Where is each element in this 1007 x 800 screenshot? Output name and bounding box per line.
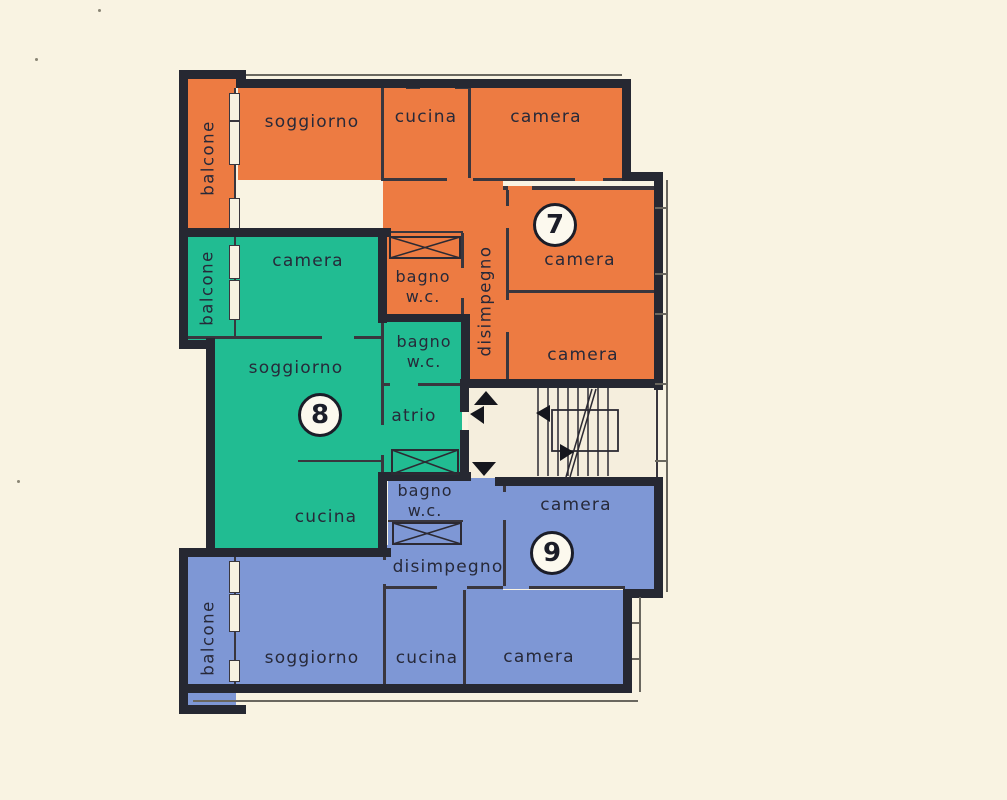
wall-thick [206, 548, 391, 557]
label-camera2-apt7: camera [547, 345, 618, 365]
label-cucina-apt9: cucina [396, 648, 459, 668]
wall-thick [179, 705, 246, 714]
label-bagno-apt9: bagno w.c. [397, 481, 452, 521]
wall [381, 88, 384, 180]
label-balcone-apt8: balcone [198, 250, 217, 325]
wall [383, 231, 463, 233]
wall-thick [378, 314, 470, 322]
window [229, 280, 240, 320]
wall [463, 590, 466, 684]
wall-thick [378, 228, 387, 323]
outline [193, 700, 638, 702]
tick [655, 273, 666, 275]
wall-thick [206, 338, 215, 557]
staircase [468, 386, 655, 478]
label-disimpegno-apt9: disimpegno [393, 557, 504, 577]
wall-thick [179, 70, 188, 348]
paper-speck [35, 58, 38, 61]
window [229, 594, 240, 632]
window [229, 561, 240, 593]
apartment-8-badge: 8 [298, 393, 342, 437]
label-balcone-apt7: balcone [199, 120, 218, 195]
wall-thick [622, 79, 631, 181]
wall-thick [378, 472, 387, 557]
outline [666, 480, 668, 592]
room-entry-strip-apt9 [463, 478, 503, 545]
tick [655, 383, 666, 385]
label-camera-apt9: camera [540, 495, 611, 515]
floor-plan-canvas: balcone soggiorno cucina camera bagno w.… [0, 0, 1007, 800]
room-cucina-apt9 [383, 590, 465, 684]
tick [655, 313, 666, 315]
apartment-9-badge: 9 [530, 531, 574, 575]
left-arrow-icon [470, 406, 484, 424]
wall [468, 88, 471, 180]
label-camera-top-apt7: camera [510, 107, 581, 127]
label-soggiorno-apt8: soggiorno [249, 358, 344, 378]
label-camera-apt7: camera [544, 250, 615, 270]
room-camera2-apt7 [503, 292, 654, 380]
window [229, 121, 240, 165]
room-camera2-apt9 [465, 590, 625, 684]
wall-thick [654, 172, 663, 390]
label-soggiorno-apt7: soggiorno [265, 112, 360, 132]
room-corridor-apt7 [383, 180, 503, 233]
wall [506, 290, 654, 293]
apartment-7-badge: 7 [533, 203, 577, 247]
outline [639, 597, 641, 692]
wall [298, 460, 383, 462]
wall-thick [623, 589, 632, 692]
paper-speck [17, 480, 20, 483]
label-bagno-apt8: bagno w.c. [396, 332, 451, 372]
shaft-box [392, 522, 462, 545]
wall-thick [185, 684, 632, 693]
label-disimpegno-apt7: disimpegno [476, 246, 495, 357]
window [229, 198, 240, 230]
label-soggiorno-apt9: soggiorno [265, 648, 360, 668]
window [229, 93, 240, 121]
window [229, 660, 240, 682]
tick [655, 207, 666, 209]
tick [632, 622, 640, 624]
paper-speck [98, 9, 101, 12]
wall-thick [179, 340, 215, 349]
tick [632, 658, 640, 660]
outline [246, 74, 622, 76]
wall-thick [654, 477, 663, 597]
label-camera2-apt9: camera [503, 647, 574, 667]
wall-thick [495, 477, 663, 486]
label-balcone-apt9: balcone [199, 600, 218, 675]
wall-thick [179, 70, 246, 79]
label-bagno-apt7: bagno w.c. [395, 267, 450, 307]
label-cucina-apt8: cucina [295, 507, 358, 527]
wall [656, 388, 658, 478]
room-camera-apt7 [503, 188, 654, 292]
room-top-row-apt7 [238, 88, 623, 180]
tick [655, 460, 666, 462]
label-cucina-apt7: cucina [395, 107, 458, 127]
shaft-box [391, 449, 459, 475]
down-arrow-icon [472, 462, 496, 476]
wall-thick [179, 548, 188, 714]
wall [383, 590, 386, 684]
label-camera-apt8: camera [272, 251, 343, 271]
label-atrio-apt8: atrio [391, 406, 436, 426]
window [229, 245, 240, 279]
wall-thick [236, 79, 631, 88]
up-arrow-icon [474, 391, 498, 405]
shaft-box [389, 236, 461, 259]
wall-thick [179, 228, 391, 237]
outline [666, 180, 668, 480]
wall-thick [461, 318, 470, 383]
